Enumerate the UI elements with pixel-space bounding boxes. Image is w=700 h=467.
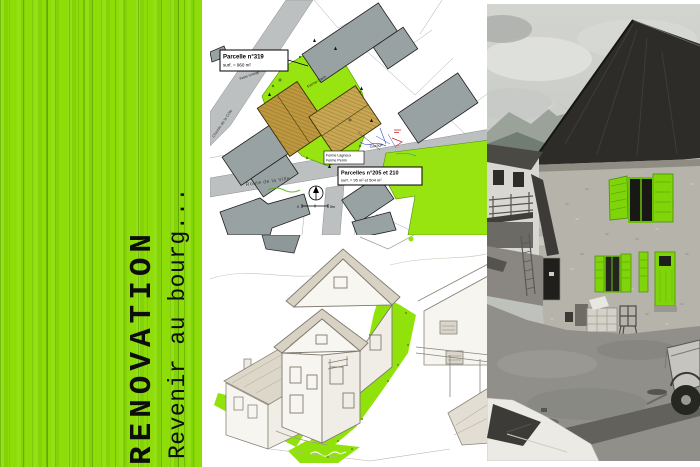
- farm-lagneux-label: Ferme Lagneux: [326, 154, 351, 158]
- poster-title: RENOVATION: [127, 229, 158, 465]
- parcel-b-label: Parcelles n°205 et 210 surf. = 95 m² et …: [338, 167, 422, 185]
- farm-label-box: Ferme Lagneux Ferme Perrin: [324, 151, 364, 164]
- parcel-a-surface: surf. = 960 m²: [223, 63, 251, 68]
- green-wood-panel: RENOVATION Revenir au bourg...: [0, 0, 202, 467]
- poster-subtitle: Revenir au bourg...: [167, 187, 190, 459]
- north-arrow: [309, 186, 323, 200]
- site-plan-drawing: Parcelle n°319 surf. = 960 m² Parcelles …: [210, 0, 490, 235]
- parcel-a-title: Parcelle n°319: [223, 55, 264, 61]
- presentation-board: RENOVATION Revenir au bourg...: [0, 0, 700, 467]
- parcel-b-surface: surf. = 95 m² et 504 m²: [341, 178, 382, 183]
- scale-end-label: 5m: [330, 205, 335, 209]
- scale-zero-label: 0: [297, 205, 299, 209]
- village-photo: [487, 4, 700, 461]
- farm-perrin-label: Ferme Perrin: [326, 159, 347, 163]
- perspective-sketch: [210, 235, 490, 467]
- parcel-b-title: Parcelles n°205 et 210: [341, 171, 399, 177]
- upper-window-green-shutters: [609, 174, 673, 222]
